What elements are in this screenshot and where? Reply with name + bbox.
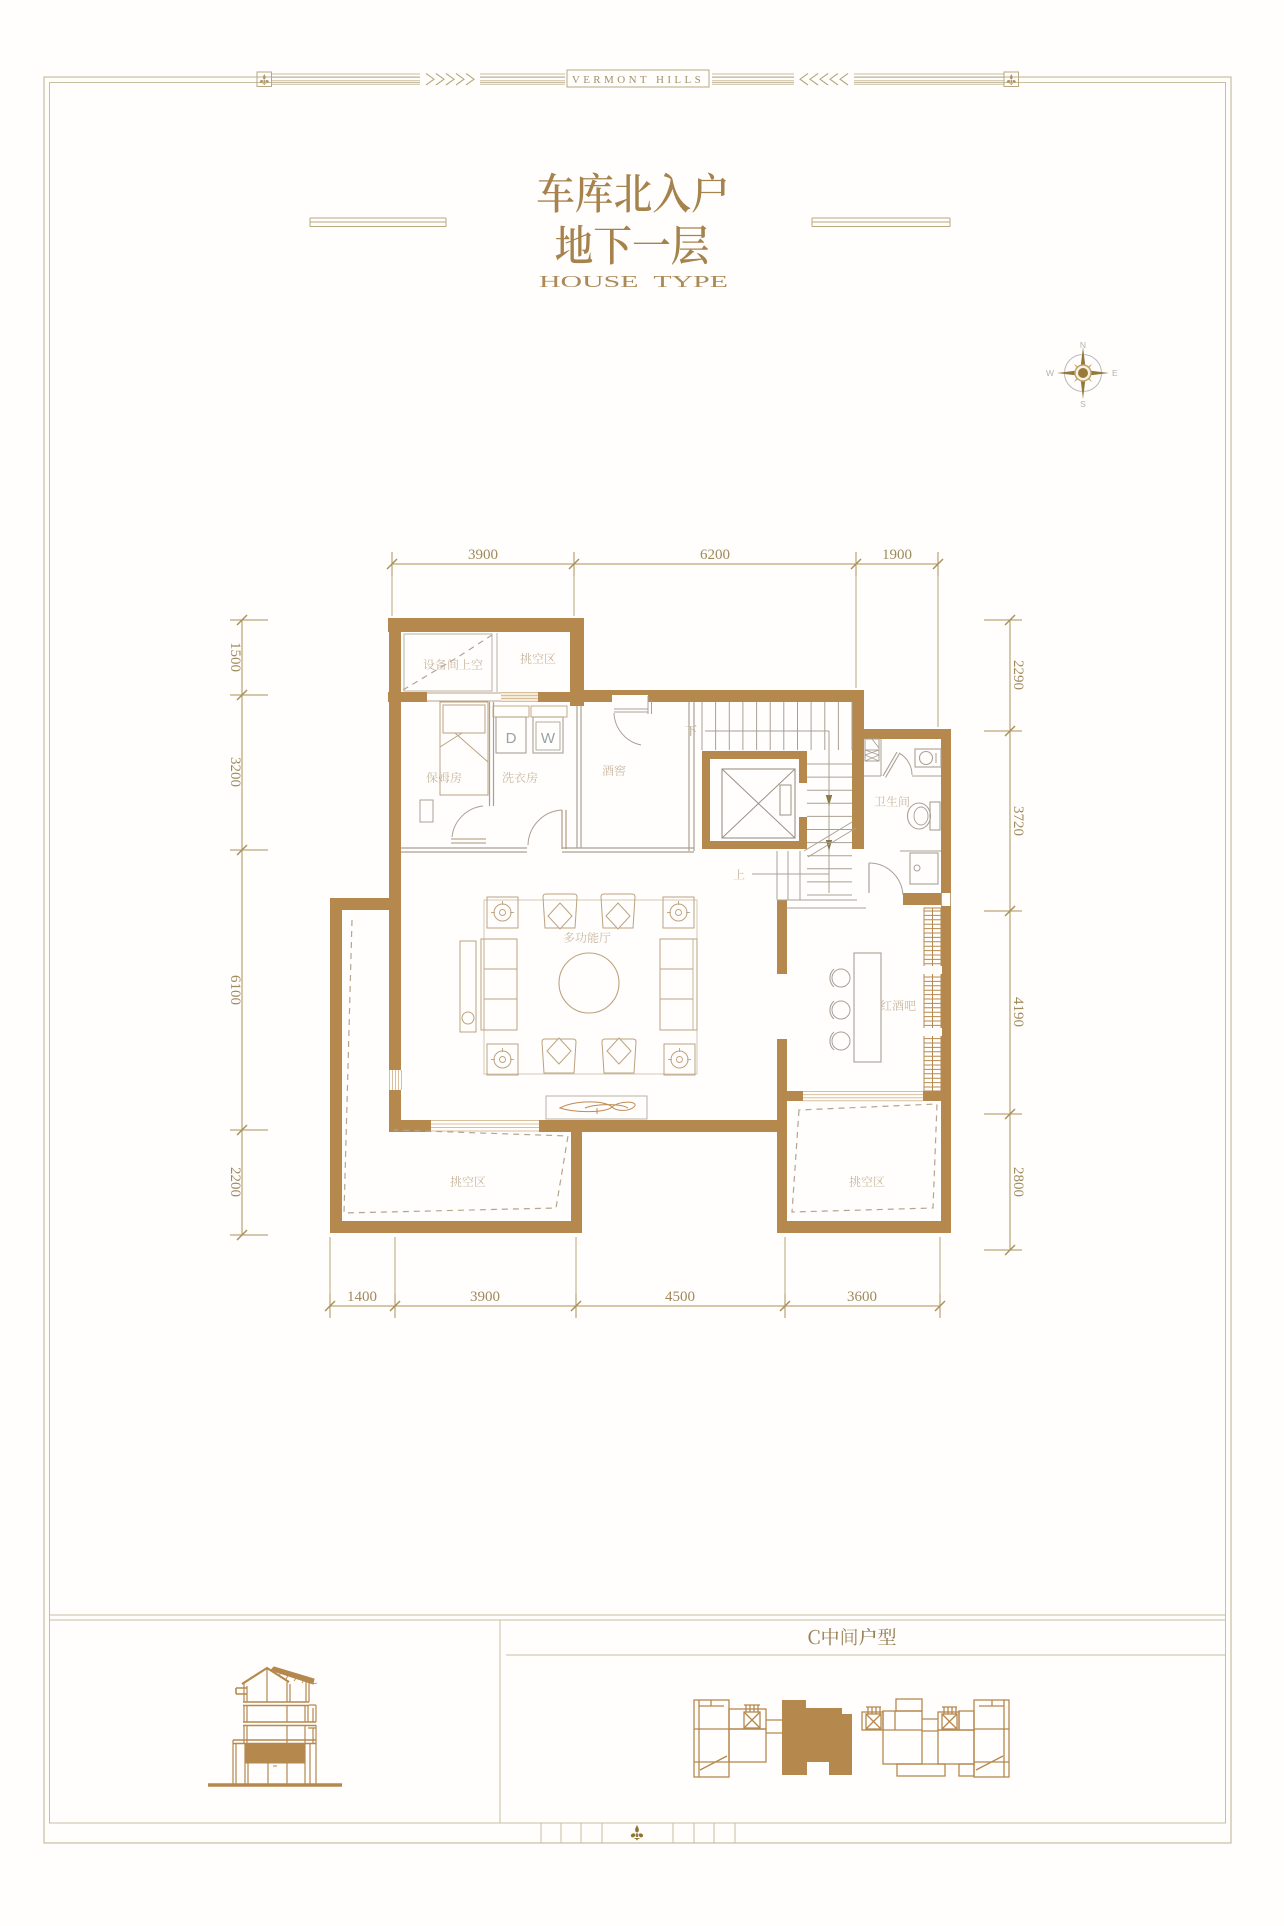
svg-text:D: D xyxy=(506,730,517,747)
svg-text:1900: 1900 xyxy=(882,547,912,563)
svg-text:S: S xyxy=(1080,399,1086,409)
svg-text:3720: 3720 xyxy=(1010,806,1026,836)
svg-text:W: W xyxy=(1046,368,1054,378)
svg-text:4190: 4190 xyxy=(1010,997,1026,1027)
svg-text:E: E xyxy=(1112,368,1118,378)
svg-text:HOUSE TYPE: HOUSE TYPE xyxy=(539,272,728,291)
svg-text:3600: 3600 xyxy=(847,1289,877,1305)
svg-text:VERMONT HILLS: VERMONT HILLS xyxy=(572,74,704,86)
svg-text:3900: 3900 xyxy=(468,547,498,563)
svg-text:1500: 1500 xyxy=(227,642,243,672)
svg-text:3900: 3900 xyxy=(470,1289,500,1305)
svg-text:N: N xyxy=(1080,340,1086,350)
svg-text:2290: 2290 xyxy=(1010,660,1026,690)
svg-text:2200: 2200 xyxy=(227,1167,243,1197)
svg-text:6200: 6200 xyxy=(700,547,730,563)
svg-text:1400: 1400 xyxy=(347,1289,377,1305)
svg-text:4500: 4500 xyxy=(665,1289,695,1305)
svg-text:6100: 6100 xyxy=(227,975,243,1005)
svg-text:2800: 2800 xyxy=(1010,1167,1026,1197)
svg-text:3200: 3200 xyxy=(227,757,243,787)
svg-text:W: W xyxy=(541,730,556,747)
